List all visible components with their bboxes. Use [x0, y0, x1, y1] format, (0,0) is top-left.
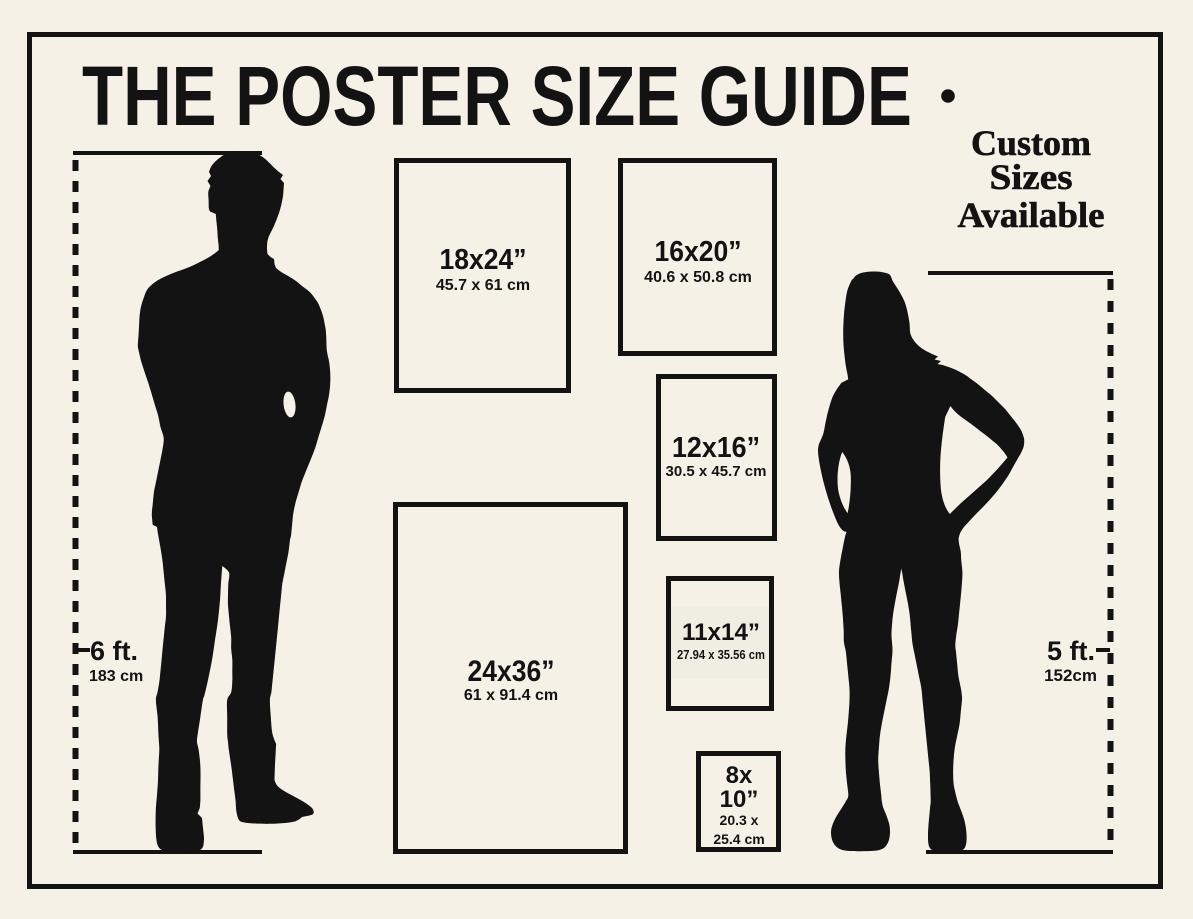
svg-text:61 x 91.4 cm: 61 x 91.4 cm [464, 687, 558, 704]
svg-text:45.7 x 61 cm: 45.7 x 61 cm [436, 277, 530, 294]
svg-text:30.5 x 45.7 cm: 30.5 x 45.7 cm [666, 463, 767, 480]
svg-text:24x36”: 24x36” [468, 655, 555, 688]
svg-text:11x14”: 11x14” [682, 619, 760, 646]
svg-text:5 ft.: 5 ft. [1047, 636, 1095, 666]
svg-text:183 cm: 183 cm [89, 668, 143, 685]
svg-text:25.4 cm: 25.4 cm [713, 831, 764, 847]
svg-text:THE POSTER SIZE GUIDE: THE POSTER SIZE GUIDE [82, 50, 912, 144]
svg-text:6 ft.: 6 ft. [90, 636, 138, 666]
svg-text:8x: 8x [726, 762, 753, 789]
svg-text:16x20”: 16x20” [655, 236, 742, 268]
svg-text:Sizes: Sizes [990, 157, 1073, 197]
svg-text:40.6 x 50.8 cm: 40.6 x 50.8 cm [644, 269, 752, 286]
svg-text:Available: Available [958, 195, 1105, 235]
svg-text:20.3 x: 20.3 x [720, 812, 759, 828]
svg-text:152cm: 152cm [1044, 666, 1097, 685]
svg-text:18x24”: 18x24” [440, 244, 527, 276]
svg-text:12x16”: 12x16” [672, 432, 760, 464]
svg-text:10”: 10” [720, 786, 759, 813]
svg-text:27.94 x 35.56 cm: 27.94 x 35.56 cm [677, 647, 765, 662]
